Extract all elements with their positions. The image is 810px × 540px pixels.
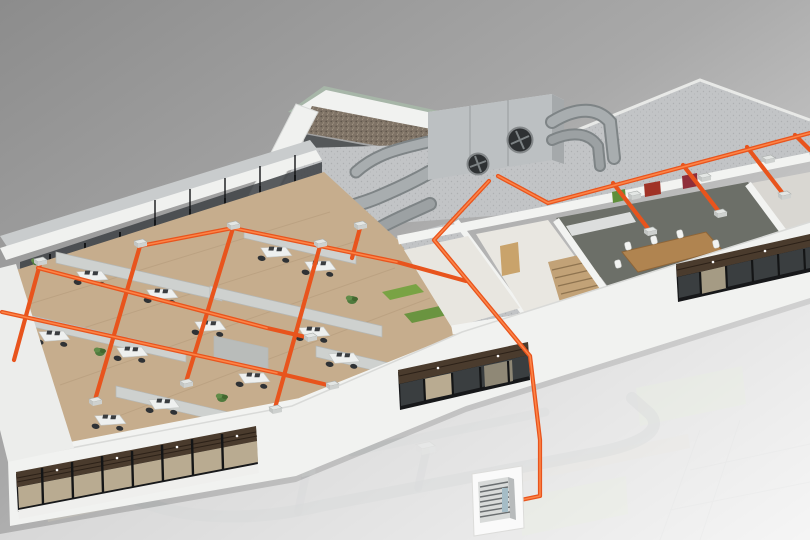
panel-accent-strip <box>502 488 508 512</box>
ahu-fan-2 <box>468 154 489 175</box>
ahu-side <box>552 94 564 164</box>
control-panel <box>472 466 524 536</box>
ahu-fan-1 <box>508 128 533 153</box>
wood-door <box>500 242 520 276</box>
hvac-building-illustration <box>0 0 810 540</box>
render-canvas <box>0 0 810 540</box>
